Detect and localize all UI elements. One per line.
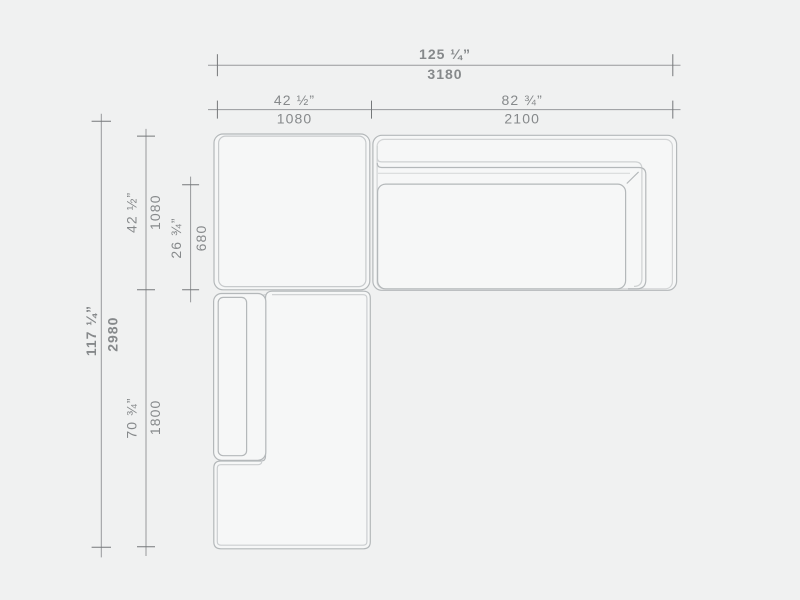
svg-text:42 ½”: 42 ½” — [274, 92, 315, 108]
svg-text:3180: 3180 — [427, 66, 462, 82]
svg-text:2100: 2100 — [504, 110, 540, 126]
svg-text:82 ¾”: 82 ¾” — [502, 92, 543, 108]
svg-text:117 ¼”: 117 ¼” — [83, 305, 99, 356]
svg-text:125 ¼”: 125 ¼” — [419, 46, 471, 62]
svg-text:680: 680 — [193, 225, 209, 252]
svg-text:1080: 1080 — [147, 194, 163, 230]
svg-text:1080: 1080 — [277, 110, 313, 126]
svg-text:1800: 1800 — [147, 400, 163, 436]
svg-text:42 ½”: 42 ½” — [124, 192, 140, 233]
svg-text:2980: 2980 — [105, 317, 121, 352]
svg-text:26 ¾”: 26 ¾” — [168, 217, 184, 258]
svg-text:70 ¾”: 70 ¾” — [124, 397, 140, 438]
